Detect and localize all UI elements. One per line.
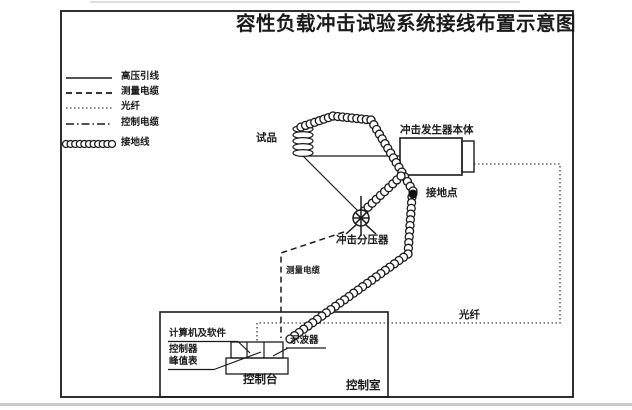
controller-leader-line [214, 352, 261, 370]
hv-lead-sample-to-divider [303, 156, 359, 212]
computer-leader-line [238, 342, 250, 354]
diagram-canvas [0, 0, 632, 410]
oscilloscope-label: 示波器 [290, 336, 319, 347]
legend-label-hv-lead: 高压引线 [121, 72, 159, 83]
measurement-cable-label: 测量电缆 [286, 266, 320, 276]
control-room-label: 控制室 [346, 380, 381, 393]
ground-point-dot [409, 190, 418, 199]
impulse-generator-bushing [462, 141, 474, 172]
legend-label-control-cable: 控制电缆 [121, 118, 159, 129]
legend-label-ground-wire: 接地线 [121, 138, 150, 149]
control-console-label: 控制台 [243, 374, 278, 387]
peak-meter-label: 峰值表 [169, 357, 198, 368]
scan-artifact-bottom [0, 403, 632, 406]
legend-label-measure-cable: 测量电缆 [121, 87, 159, 98]
page-title: 容性负载冲击试验系统接线布置示意图 [236, 14, 576, 36]
ground-wire-coils [63, 112, 418, 343]
test-sample-label: 试品 [256, 133, 277, 145]
ground-point-label: 接地点 [426, 188, 458, 200]
console-top-box [231, 342, 283, 358]
oscilloscope-leader-line [273, 348, 288, 356]
controller-label: 控制器 [169, 345, 198, 356]
console-bottom-box [226, 358, 288, 374]
legend-label-optical-fiber: 光纤 [121, 102, 140, 113]
impulse-generator-label: 冲击发生器本体 [400, 125, 474, 137]
scan-artifact-top [90, 1, 520, 3]
impulse-divider-label: 冲击分压器 [336, 235, 389, 247]
figure-capacitive-load-impulse-test-wiring-diagram: 容性负载冲击试验系统接线布置示意图 高压引线 测量电缆 光纤 控制电缆 接地线 … [0, 0, 632, 410]
impulse-generator-box [400, 138, 462, 175]
optical-fiber-label: 光纤 [459, 310, 480, 322]
computer-software-label: 计算机及软件 [169, 329, 226, 340]
